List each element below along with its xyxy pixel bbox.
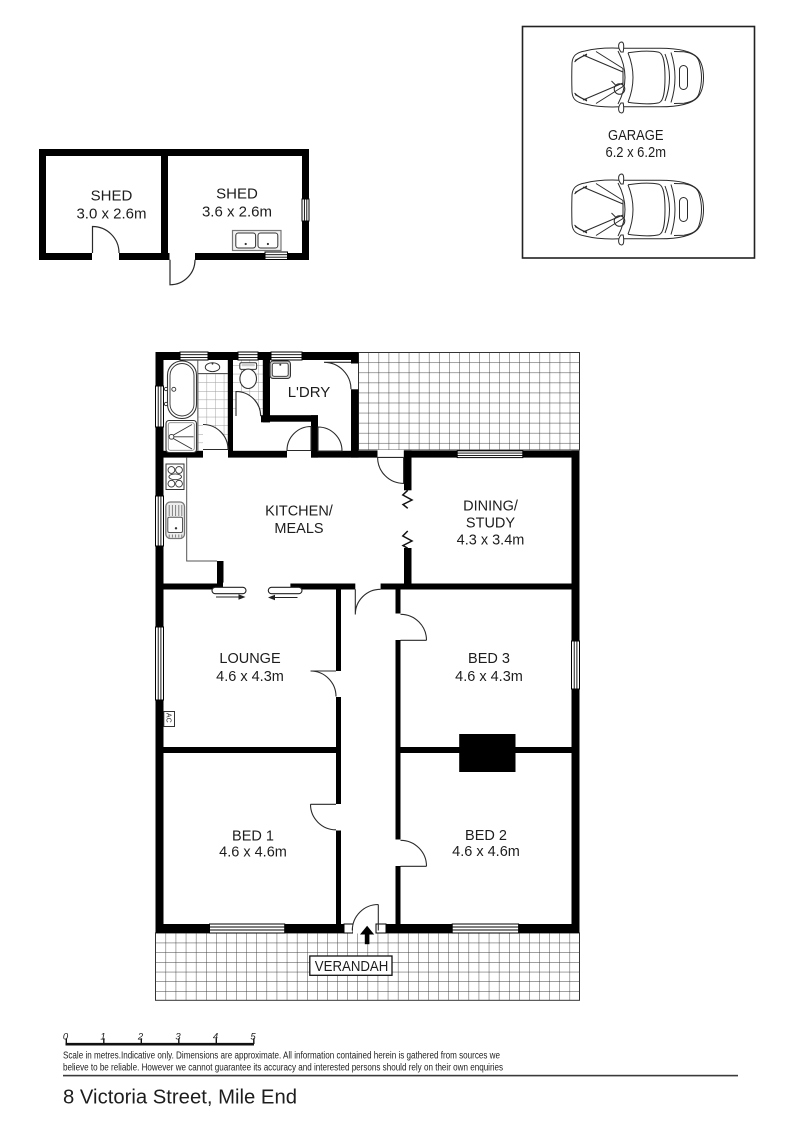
svg-text:0: 0 bbox=[63, 1032, 69, 1043]
svg-text:2: 2 bbox=[137, 1032, 144, 1043]
svg-text:BED 2: BED 2 bbox=[465, 828, 507, 844]
svg-text:AC: AC bbox=[164, 713, 171, 723]
svg-text:4.6 x 4.6m: 4.6 x 4.6m bbox=[452, 844, 520, 860]
svg-text:3: 3 bbox=[175, 1032, 181, 1043]
svg-text:1: 1 bbox=[100, 1032, 105, 1043]
svg-text:3.0 x 2.6m: 3.0 x 2.6m bbox=[76, 206, 146, 223]
svg-text:MEALS: MEALS bbox=[274, 521, 323, 537]
svg-text:4: 4 bbox=[213, 1032, 218, 1043]
svg-text:SHED: SHED bbox=[91, 188, 133, 205]
svg-text:L'DRY: L'DRY bbox=[288, 384, 331, 401]
svg-text:4.6 x 4.3m: 4.6 x 4.3m bbox=[455, 669, 523, 685]
svg-text:Scale in metres.Indicative onl: Scale in metres.Indicative only. Dimensi… bbox=[63, 1051, 500, 1062]
svg-text:BED 3: BED 3 bbox=[468, 651, 510, 667]
svg-text:LOUNGE: LOUNGE bbox=[219, 651, 281, 667]
svg-text:STUDY: STUDY bbox=[466, 516, 515, 532]
svg-text:5: 5 bbox=[250, 1032, 256, 1043]
svg-text:4.6 x 4.3m: 4.6 x 4.3m bbox=[216, 669, 284, 685]
svg-text:VERANDAH: VERANDAH bbox=[315, 959, 389, 975]
svg-text:KITCHEN/: KITCHEN/ bbox=[265, 504, 334, 520]
svg-text:SHED: SHED bbox=[216, 186, 258, 203]
svg-text:believe to be reliable. Howeve: believe to be reliable. However we canno… bbox=[63, 1063, 503, 1074]
svg-text:BED 1: BED 1 bbox=[232, 829, 274, 845]
svg-text:8 Victoria Street, Mile End: 8 Victoria Street, Mile End bbox=[63, 1087, 297, 1109]
svg-text:3.6 x 2.6m: 3.6 x 2.6m bbox=[202, 204, 272, 221]
svg-text:4.6 x 4.6m: 4.6 x 4.6m bbox=[219, 845, 287, 861]
svg-text:GARAGE: GARAGE bbox=[608, 127, 664, 144]
svg-text:4.3 x 3.4m: 4.3 x 3.4m bbox=[457, 533, 525, 549]
svg-text:6.2 x 6.2m: 6.2 x 6.2m bbox=[606, 144, 667, 161]
svg-text:DINING/: DINING/ bbox=[463, 499, 519, 515]
